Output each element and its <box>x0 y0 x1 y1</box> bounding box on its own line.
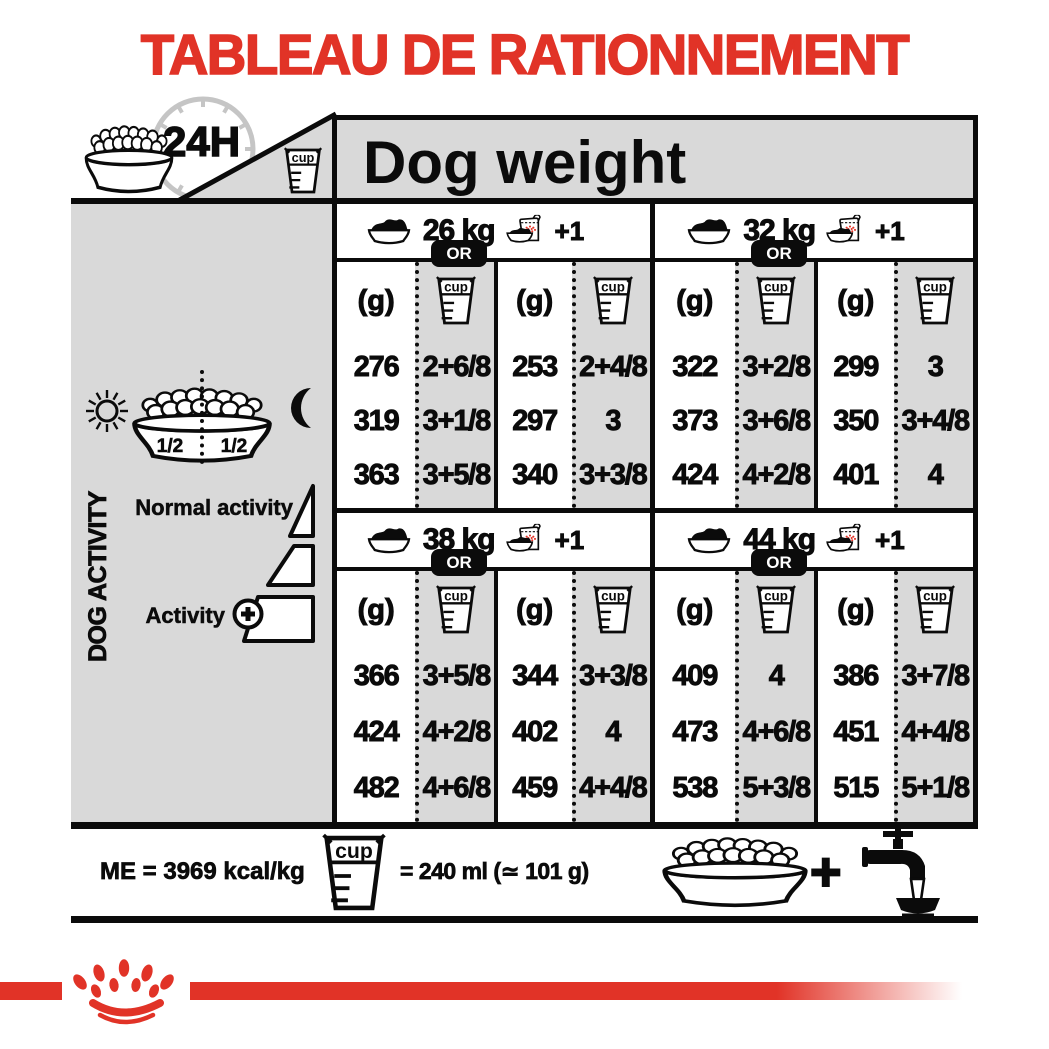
activity-triangle-small <box>290 486 313 536</box>
grams-header: (g) <box>498 571 572 649</box>
table-cell: 401 <box>818 448 894 502</box>
table-cell: 4+6/8 <box>419 760 493 816</box>
table-cell: 350 <box>818 394 894 448</box>
table-cell: 319 <box>337 394 415 448</box>
table-cell: 297 <box>498 394 572 448</box>
table-cell: 451 <box>818 705 894 761</box>
activity-triangle-medium <box>268 546 313 585</box>
table-cell: 344 <box>498 649 572 705</box>
table-cell: 3+7/8 <box>898 649 974 705</box>
or-badge: OR <box>431 240 487 267</box>
grams-header: (g) <box>655 262 735 340</box>
section-columns: (g) 366 424 482 3+5/8 4+2/8 4+6/8 (g) 34… <box>337 571 650 822</box>
divider-bottom <box>71 916 978 923</box>
grams-header: (g) <box>655 571 735 649</box>
plus-one-label: +1 <box>555 216 585 247</box>
logo-bar-left <box>0 982 62 1000</box>
table-cell: 3+2/8 <box>739 340 815 394</box>
measuring-cup-icon <box>754 584 798 636</box>
table-cell: 459 <box>498 760 572 816</box>
measuring-cup-icon <box>434 584 478 636</box>
table-cell: 409 <box>655 649 735 705</box>
cup-column: 3 3+4/8 4 <box>894 262 974 508</box>
section-columns: (g) 322 373 424 3+2/8 3+6/8 4+2/8 (g) 29… <box>655 262 973 508</box>
kibble-bowl-icon <box>658 834 812 914</box>
food-bowl-icon <box>685 216 733 246</box>
weight-section-26kg: 26 kg +1 OR (g) 276 319 363 2+6/8 3+1/8 … <box>337 204 655 513</box>
table-cell: 402 <box>498 705 572 761</box>
grams-header: (g) <box>337 571 415 649</box>
energy-value: ME = 3969 kcal/kg <box>100 858 305 886</box>
weight-section-32kg: 32 kg +1 OR (g) 322 373 424 3+2/8 3+6/8 … <box>655 204 973 513</box>
table-cell: 4+2/8 <box>419 705 493 761</box>
morning-half-label: 1/2 <box>148 436 192 458</box>
cup-column: 2+4/8 3 3+3/8 <box>572 262 650 508</box>
table-cell: 299 <box>818 340 894 394</box>
half-divider-dotted-line <box>200 370 204 464</box>
cup-header <box>419 262 493 340</box>
or-badge: OR <box>751 240 807 267</box>
measuring-cup-icon <box>282 146 324 196</box>
or-badge: OR <box>751 549 807 576</box>
table-cell: 3 <box>576 394 650 448</box>
measuring-cup-icon <box>316 832 392 914</box>
table-cell: 4 <box>898 448 974 502</box>
activity-label: Activity <box>125 603 225 629</box>
measuring-cup-icon <box>913 584 957 636</box>
table-cell: 3+4/8 <box>898 394 974 448</box>
table-cell: 2+6/8 <box>419 340 493 394</box>
weight-section-38kg: 38 kg +1 OR (g) 366 424 482 3+5/8 4+2/8 … <box>337 513 655 822</box>
grams-header: (g) <box>818 571 894 649</box>
dog-weight-label: Dog weight <box>337 128 686 197</box>
table-cell: 3 <box>898 340 974 394</box>
table-cell: 363 <box>337 448 415 502</box>
table-cell: 3+5/8 <box>419 448 493 502</box>
food-bag-plus-one-icon <box>825 207 865 255</box>
section-columns: (g) 409 473 538 4 4+6/8 5+3/8 (g) 386 45… <box>655 571 973 822</box>
cup-header <box>739 571 815 649</box>
weight-section-44kg: 44 kg +1 OR (g) 409 473 538 4 4+6/8 5+3/… <box>655 513 973 822</box>
food-bag-plus-one-icon <box>505 516 545 564</box>
table-cell: 3+6/8 <box>739 394 815 448</box>
cup-column: 3+2/8 3+6/8 4+2/8 <box>735 262 815 508</box>
grams-column: (g) 253 297 340 <box>494 262 572 508</box>
table-cell: 373 <box>655 394 735 448</box>
ration-table: 26 kg +1 OR (g) 276 319 363 2+6/8 3+1/8 … <box>332 204 978 822</box>
plus-one-label: +1 <box>555 525 585 556</box>
dog-weight-band: Dog weight <box>332 115 978 204</box>
cup-header <box>576 571 650 649</box>
food-bag-plus-one-icon <box>505 207 545 255</box>
table-cell: 2+4/8 <box>576 340 650 394</box>
grams-column: (g) 344 402 459 <box>494 571 572 822</box>
dog-activity-title: DOG ACTIVITY <box>84 472 113 662</box>
cup-header <box>898 571 974 649</box>
section-header: 44 kg +1 OR <box>655 513 973 571</box>
cup-header <box>576 262 650 340</box>
table-cell: 4+4/8 <box>898 705 974 761</box>
table-cell: 5+3/8 <box>739 760 815 816</box>
grams-column: (g) 409 473 538 <box>655 571 735 822</box>
table-cell: 4 <box>739 649 815 705</box>
grams-header: (g) <box>498 262 572 340</box>
table-cell: 424 <box>337 705 415 761</box>
table-cell: 322 <box>655 340 735 394</box>
cup-column: 3+7/8 4+4/8 5+1/8 <box>894 571 974 822</box>
grams-column: (g) 276 319 363 <box>337 262 415 508</box>
evening-half-label: 1/2 <box>212 436 256 458</box>
grams-header: (g) <box>818 262 894 340</box>
plus-one-label: +1 <box>875 525 905 556</box>
grams-header: (g) <box>337 262 415 340</box>
sun-icon <box>84 388 130 434</box>
grams-column: (g) 299 350 401 <box>814 262 894 508</box>
measuring-cup-icon <box>434 275 478 327</box>
table-cell: 4+4/8 <box>576 760 650 816</box>
cup-equivalence: = 240 ml (≃ 101 g) <box>400 858 589 885</box>
divider-mid <box>71 822 978 829</box>
food-bowl-icon <box>365 216 413 246</box>
cup-header <box>898 262 974 340</box>
table-cell: 515 <box>818 760 894 816</box>
table-cell: 366 <box>337 649 415 705</box>
table-cell: 424 <box>655 448 735 502</box>
plus-sign: + <box>810 841 842 903</box>
table-cell: 482 <box>337 760 415 816</box>
food-bowl-icon <box>685 525 733 555</box>
logo-bar-right <box>190 982 962 1000</box>
cup-header <box>419 571 493 649</box>
table-cell: 3+3/8 <box>576 448 650 502</box>
table-cell: 4+6/8 <box>739 705 815 761</box>
table-cell: 3+5/8 <box>419 649 493 705</box>
kibble-bowl-icon <box>82 122 176 200</box>
water-tap-icon <box>852 826 944 918</box>
cup-column: 3+5/8 4+2/8 4+6/8 <box>415 571 493 822</box>
table-cell: 276 <box>337 340 415 394</box>
royal-canin-crown-logo <box>60 952 190 1028</box>
cup-header <box>739 262 815 340</box>
section-header: 38 kg +1 OR <box>337 513 650 571</box>
table-cell: 3+3/8 <box>576 649 650 705</box>
food-bowl-icon <box>365 525 413 555</box>
table-cell: 4 <box>576 705 650 761</box>
measuring-cup-icon <box>591 584 635 636</box>
grams-column: (g) 386 451 515 <box>814 571 894 822</box>
cup-column: 2+6/8 3+1/8 3+5/8 <box>415 262 493 508</box>
table-cell: 473 <box>655 705 735 761</box>
table-cell: 3+1/8 <box>419 394 493 448</box>
table-cell: 253 <box>498 340 572 394</box>
section-header: 26 kg +1 OR <box>337 204 650 262</box>
cup-column: 3+3/8 4 4+4/8 <box>572 571 650 822</box>
cup-column: 4 4+6/8 5+3/8 <box>735 571 815 822</box>
table-cell: 340 <box>498 448 572 502</box>
grams-column: (g) 322 373 424 <box>655 262 735 508</box>
table-cell: 4+2/8 <box>739 448 815 502</box>
section-columns: (g) 276 319 363 2+6/8 3+1/8 3+5/8 (g) 25… <box>337 262 650 508</box>
food-bag-plus-one-icon <box>825 516 865 564</box>
or-badge: OR <box>431 549 487 576</box>
grams-column: (g) 366 424 482 <box>337 571 415 822</box>
moon-icon <box>281 386 315 430</box>
measuring-cup-icon <box>754 275 798 327</box>
table-cell: 386 <box>818 649 894 705</box>
measuring-cup-icon <box>591 275 635 327</box>
measuring-cup-icon <box>913 275 957 327</box>
page-title: TABLEAU DE RATIONNEMENT <box>21 22 1028 88</box>
sun-rays <box>86 390 128 432</box>
plus-one-label: +1 <box>875 216 905 247</box>
table-cell: 5+1/8 <box>898 760 974 816</box>
table-cell: 538 <box>655 760 735 816</box>
section-header: 32 kg +1 OR <box>655 204 973 262</box>
activity-triangle-icons <box>230 480 330 650</box>
